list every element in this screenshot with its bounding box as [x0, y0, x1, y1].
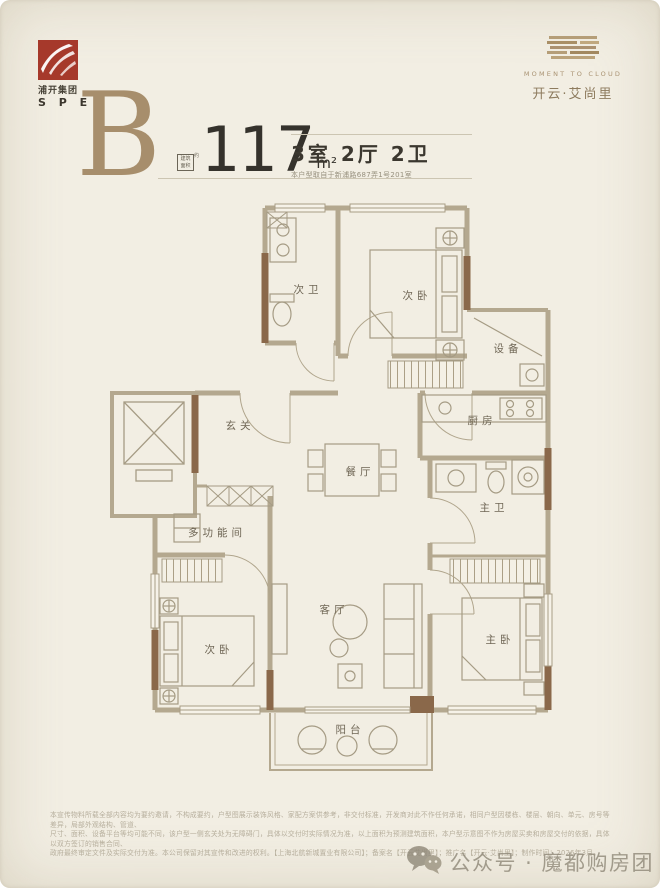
project-logo: MOMENT TO CLOUD 开云·艾尚里	[508, 36, 638, 102]
label-equipment: 设备	[494, 342, 523, 355]
area-label-box: 建筑 面积 约	[177, 154, 194, 171]
label-bath2: 次卫	[294, 283, 323, 296]
wechat-icon	[406, 845, 442, 879]
label-master: 主卧	[486, 633, 515, 646]
elevator	[124, 402, 184, 481]
label-living: 客厅	[320, 603, 349, 616]
label-balcony: 阳台	[336, 723, 365, 736]
room-labels: 次卫 次卧 设备 厨房 玄关 餐厅 主卫 多功能间 次卧 客厅 主卧 阳台	[188, 283, 523, 736]
header-divider	[158, 178, 472, 179]
label-bed3: 次卧	[205, 643, 234, 656]
unit-type-letter: B	[76, 78, 161, 194]
area-label-line2: 面积	[178, 163, 193, 170]
wechat-account: 公众号 · 魔都购房团	[449, 847, 654, 877]
area-approx: 约	[194, 153, 199, 160]
area-label-line1: 建筑	[178, 156, 193, 163]
wechat-watermark: 公众号 · 魔都购房团	[406, 845, 654, 879]
balcony-railing	[270, 713, 432, 770]
project-tagline: MOMENT TO CLOUD	[508, 70, 638, 78]
floorplan: 次卫 次卧 设备 厨房 玄关 餐厅 主卫 多功能间 次卧 客厅 主卧 阳台	[100, 198, 560, 782]
label-kitchen: 厨房	[468, 414, 497, 427]
cloud-lines-icon	[547, 36, 599, 63]
shaft-boxes	[207, 212, 287, 506]
poster-page: 浦开集团 S P E MOMENT TO CLOUD 开云·艾尚里 B 建筑 面…	[0, 0, 660, 888]
walls	[112, 208, 548, 710]
label-bed2: 次卧	[403, 289, 432, 302]
project-name: 开云·艾尚里	[508, 83, 638, 102]
label-dining: 餐厅	[346, 465, 375, 478]
label-foyer: 玄关	[226, 419, 255, 432]
layout-group: 3室 2厅 2卫 本户型取自于新浦路687弄1号201室	[291, 134, 472, 180]
room-count: 3室 2厅 2卫	[291, 138, 472, 167]
label-multi: 多功能间	[188, 526, 246, 539]
label-bath1: 主卫	[480, 502, 509, 514]
wall-pillar	[410, 696, 434, 713]
furniture	[160, 218, 546, 756]
spe-logo-icon	[38, 40, 78, 80]
disclaimer-line1: 本宣传物料所载全部内容均为要约邀请，不构成要约，户型图展示装饰风格、家配方案供参…	[50, 811, 614, 830]
